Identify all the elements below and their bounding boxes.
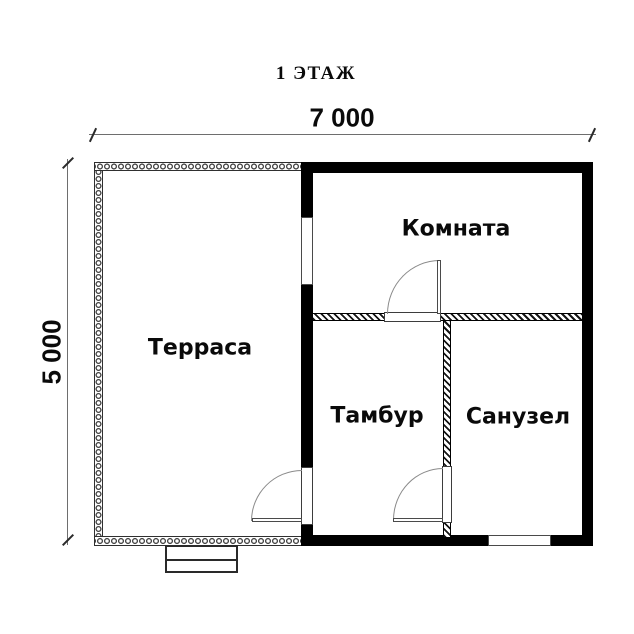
door-leaf-room (437, 260, 441, 314)
floor-plan-canvas: 1 ЭТАЖ 7 000 5 000 Терраса Комната Тамбу… (0, 0, 634, 634)
dimension-width-label: 7 000 (309, 103, 374, 134)
window-bathroom (488, 535, 551, 546)
exterior-wall-right (582, 162, 593, 546)
partition-room-tambour (313, 313, 582, 321)
exterior-wall-top (301, 162, 593, 173)
plan-title: 1 ЭТАЖ (276, 63, 356, 85)
room-label-bathroom: Санузел (466, 405, 570, 430)
door-leaf-bathroom (393, 518, 443, 522)
dimension-width-line (89, 134, 596, 135)
room-label-living: Комната (402, 217, 511, 242)
terrace-wall-top (94, 162, 302, 171)
dimension-height-line (67, 159, 68, 545)
porch-step-line (167, 559, 236, 561)
room-label-terrace: Терраса (148, 336, 252, 361)
door-arc-terrace (251, 470, 302, 521)
door-arc-room (387, 260, 440, 314)
door-opening-terrace-tambour (301, 467, 313, 525)
door-arc-bathroom (393, 468, 443, 520)
dimension-height-label: 5 000 (37, 319, 68, 384)
porch-steps (165, 545, 238, 573)
door-opening-bathroom (442, 466, 452, 523)
window-terrace-room (301, 217, 313, 285)
door-leaf-terrace (252, 518, 302, 522)
room-label-tambour: Тамбур (330, 404, 423, 429)
terrace-wall-left (94, 162, 103, 546)
